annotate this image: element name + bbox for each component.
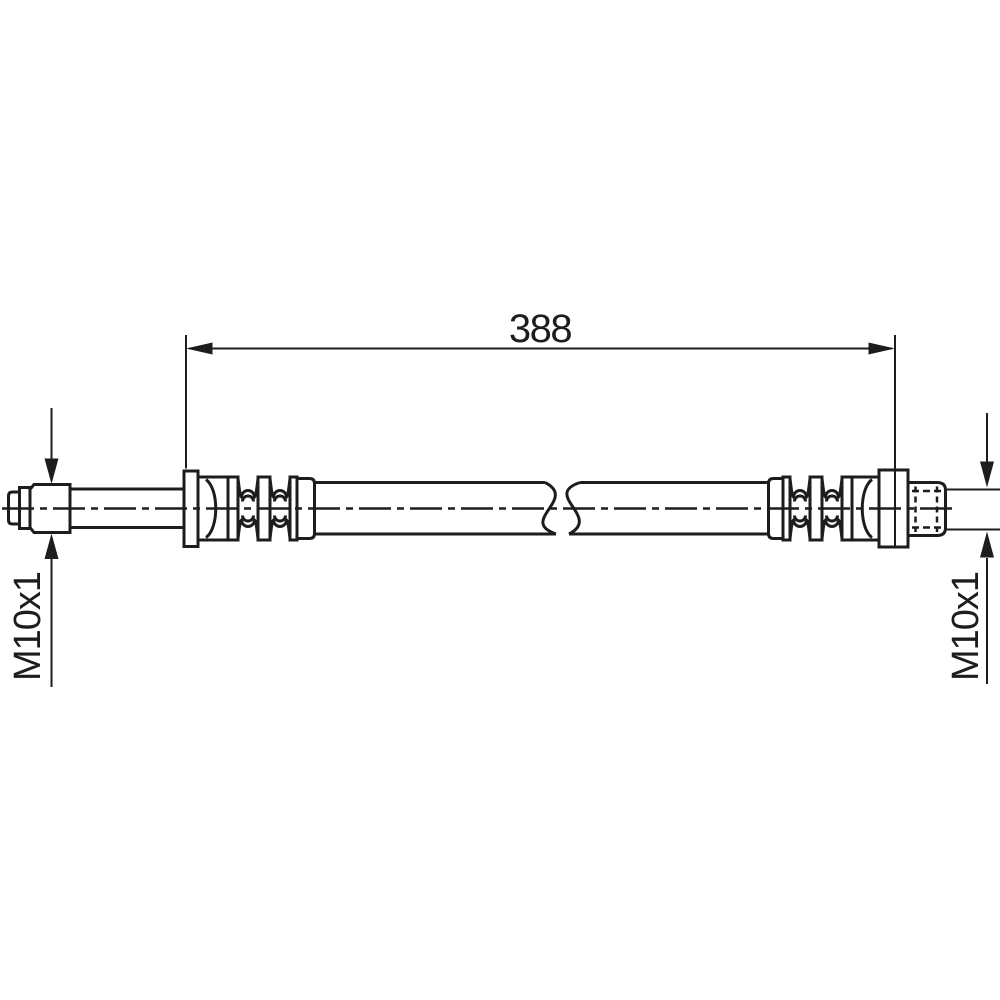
bellows-curve — [790, 520, 810, 539]
bellows-curve — [822, 479, 842, 498]
dimension-arrowhead-right — [869, 343, 896, 355]
drawing-canvas: 388 M10x1 M10x1 — [0, 0, 1000, 1000]
dimension-arrowhead-left — [186, 343, 213, 355]
right-thread-arrowhead-bottom — [980, 532, 994, 558]
brake-hose-technical-drawing: 388 M10x1 M10x1 — [0, 0, 1000, 1000]
bellows-curve — [827, 496, 838, 501]
bellows-curve — [275, 516, 286, 522]
right-thread-label: M10x1 — [945, 572, 987, 681]
left-thread-arrowhead-top — [45, 459, 59, 485]
left-thread-arrowhead-bottom — [45, 534, 59, 560]
bellows-curve — [243, 516, 254, 522]
bellows-curve — [795, 496, 806, 501]
bellows-curve — [822, 520, 842, 539]
left-thread-dimension: M10x1 — [7, 408, 59, 687]
bellows-curve — [270, 479, 290, 498]
bellows-curve — [270, 520, 290, 539]
bellows-curve — [790, 479, 810, 498]
right-thread-dimension: M10x1 — [945, 413, 1000, 684]
bellows-curve — [238, 520, 258, 539]
hose-assembly — [2, 470, 958, 547]
bellows-curve — [827, 516, 838, 522]
bellows-curve — [275, 496, 286, 501]
bellows-curve — [238, 479, 258, 498]
right-thread-arrowhead-top — [980, 462, 994, 488]
left-thread-label: M10x1 — [7, 572, 49, 681]
bellows-curve — [795, 516, 806, 522]
overall-length-value: 388 — [509, 307, 571, 351]
bellows-curve — [243, 496, 254, 501]
